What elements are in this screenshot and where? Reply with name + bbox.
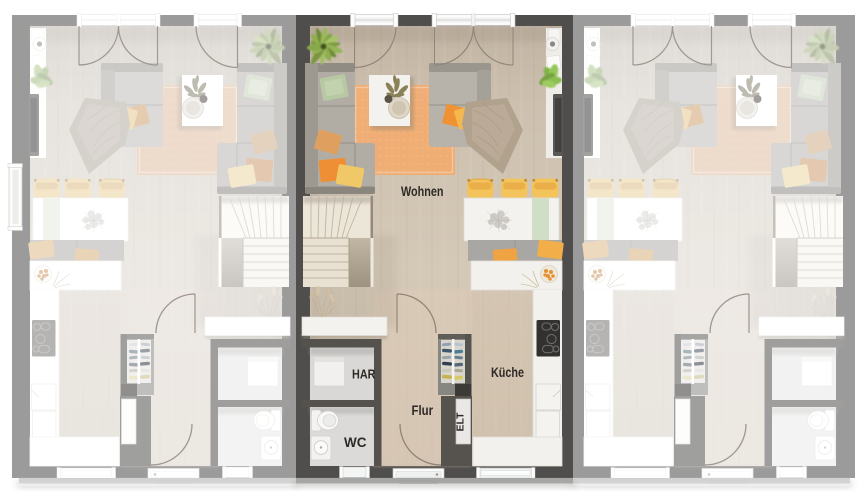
svg-text:Küche: Küche	[491, 365, 524, 380]
svg-text:HAR: HAR	[352, 367, 376, 382]
svg-text:WC: WC	[344, 435, 367, 450]
svg-text:ELT: ELT	[456, 413, 467, 432]
svg-text:Wohnen: Wohnen	[401, 184, 444, 199]
svg-text:Flur: Flur	[412, 403, 434, 418]
